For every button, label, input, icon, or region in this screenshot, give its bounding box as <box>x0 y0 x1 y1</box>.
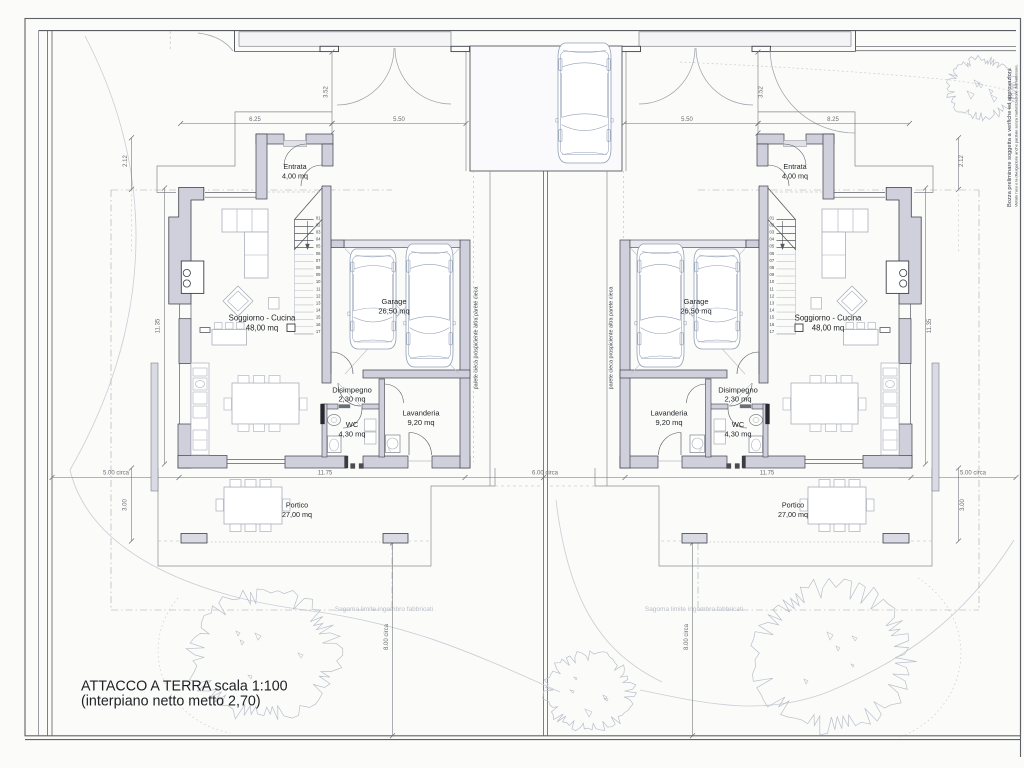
svg-text:Sagoma limite ingombro fabbric: Sagoma limite ingombro fabbricati <box>645 606 743 613</box>
svg-text:04: 04 <box>770 237 775 242</box>
svg-text:03: 03 <box>770 230 775 235</box>
svg-text:4,00 mq: 4,00 mq <box>282 172 308 181</box>
svg-text:11: 11 <box>316 286 321 291</box>
svg-text:15: 15 <box>770 315 775 320</box>
svg-text:27,00 mq: 27,00 mq <box>282 510 312 519</box>
svg-text:02: 02 <box>316 222 321 227</box>
svg-text:11: 11 <box>770 286 775 291</box>
svg-text:12: 12 <box>316 293 321 298</box>
svg-text:2,30 mq: 2,30 mq <box>338 395 365 404</box>
svg-text:Entrata: Entrata <box>783 162 806 171</box>
svg-text:07: 07 <box>770 258 775 263</box>
svg-text:05: 05 <box>316 244 321 249</box>
svg-text:01: 01 <box>316 215 321 220</box>
svg-text:26,50 mq: 26,50 mq <box>680 307 711 316</box>
svg-text:Garage: Garage <box>683 297 708 306</box>
svg-text:13: 13 <box>316 301 321 306</box>
svg-text:06: 06 <box>770 251 775 256</box>
svg-text:14: 14 <box>316 308 321 313</box>
svg-text:06: 06 <box>316 251 321 256</box>
svg-text:9,20 mq: 9,20 mq <box>655 418 682 427</box>
svg-text:Garage: Garage <box>381 297 406 306</box>
svg-text:Sagoma limite ingombro fabbric: Sagoma limite ingombro fabbricati <box>335 606 433 613</box>
svg-text:Vietato l'uso e la divulgazion: Vietato l'uso e la divulgazione anche pa… <box>1014 64 1019 207</box>
svg-text:WC: WC <box>346 420 359 429</box>
svg-text:11.75: 11.75 <box>318 471 333 477</box>
svg-text:parete cieca prospiciente altr: parete cieca prospiciente altra parete c… <box>474 287 480 390</box>
svg-text:15: 15 <box>316 315 321 320</box>
svg-text:parete cieca prospiciente altr: parete cieca prospiciente altra parete c… <box>609 287 615 390</box>
svg-text:8.00 circa: 8.00 circa <box>384 623 390 650</box>
svg-text:3.00: 3.00 <box>123 499 129 511</box>
svg-text:4,00 mq: 4,00 mq <box>782 172 808 181</box>
svg-text:Portico: Portico <box>286 501 308 510</box>
svg-text:(interpiano netto metto 2,70): (interpiano netto metto 2,70) <box>81 694 261 710</box>
svg-text:12: 12 <box>770 293 775 298</box>
svg-text:14: 14 <box>770 308 775 313</box>
svg-text:Bozza preliminare soggetta a v: Bozza preliminare soggetta a verifiche e… <box>1007 67 1013 207</box>
svg-text:2,30 mq: 2,30 mq <box>724 395 751 404</box>
svg-text:Disimpegno: Disimpegno <box>332 386 372 395</box>
svg-text:8.00 circa: 8.00 circa <box>684 623 690 650</box>
svg-text:2.12: 2.12 <box>959 155 965 167</box>
svg-text:48,00 mq: 48,00 mq <box>812 324 845 333</box>
svg-text:3.52: 3.52 <box>323 86 329 98</box>
svg-text:05: 05 <box>770 244 775 249</box>
svg-text:5.00 circa: 5.00 circa <box>103 471 130 477</box>
svg-text:16: 16 <box>316 322 321 327</box>
svg-text:48,00 mq: 48,00 mq <box>246 324 279 333</box>
svg-text:Lavanderia: Lavanderia <box>650 409 688 418</box>
svg-text:02: 02 <box>770 222 775 227</box>
svg-text:9,20 mq: 9,20 mq <box>407 418 434 427</box>
svg-text:3.52: 3.52 <box>759 86 765 98</box>
svg-text:04: 04 <box>316 237 321 242</box>
svg-text:13: 13 <box>770 301 775 306</box>
svg-text:11.35: 11.35 <box>927 318 933 333</box>
svg-text:08: 08 <box>770 265 775 270</box>
svg-text:Disimpegno: Disimpegno <box>718 386 758 395</box>
svg-text:Portico: Portico <box>782 501 804 510</box>
svg-text:08: 08 <box>316 265 321 270</box>
svg-text:Entrata: Entrata <box>283 162 306 171</box>
svg-text:10: 10 <box>770 279 775 284</box>
svg-text:6.25: 6.25 <box>249 117 261 123</box>
svg-text:10: 10 <box>316 279 321 284</box>
svg-text:5.50: 5.50 <box>681 117 693 123</box>
svg-text:27,00 mq: 27,00 mq <box>778 510 808 519</box>
svg-text:11.75: 11.75 <box>760 471 775 477</box>
svg-text:09: 09 <box>316 272 321 277</box>
svg-text:4,30 mq: 4,30 mq <box>338 430 365 439</box>
svg-text:03: 03 <box>316 230 321 235</box>
svg-text:6.00 circa: 6.00 circa <box>532 471 559 477</box>
svg-text:5.50: 5.50 <box>393 117 405 123</box>
svg-text:2.12: 2.12 <box>123 155 129 167</box>
svg-text:WC: WC <box>732 420 745 429</box>
svg-text:17: 17 <box>770 329 775 334</box>
svg-text:07: 07 <box>316 258 321 263</box>
svg-text:09: 09 <box>770 272 775 277</box>
svg-text:11.35: 11.35 <box>156 318 162 333</box>
svg-text:Soggiorno - Cucina: Soggiorno - Cucina <box>795 314 862 323</box>
svg-text:16: 16 <box>770 322 775 327</box>
svg-text:3.00: 3.00 <box>960 499 966 511</box>
svg-text:Lavanderia: Lavanderia <box>402 409 440 418</box>
svg-text:Soggiorno - Cucina: Soggiorno - Cucina <box>229 314 296 323</box>
svg-text:ATTACCO A TERRA scala 1:100: ATTACCO A TERRA scala 1:100 <box>81 679 288 695</box>
svg-text:4,30 mq: 4,30 mq <box>724 430 751 439</box>
svg-text:17: 17 <box>316 329 321 334</box>
svg-text:01: 01 <box>770 215 775 220</box>
svg-text:5.00 circa: 5.00 circa <box>960 471 987 477</box>
svg-text:26,50 mq: 26,50 mq <box>378 307 409 316</box>
svg-text:8.25: 8.25 <box>827 117 839 123</box>
